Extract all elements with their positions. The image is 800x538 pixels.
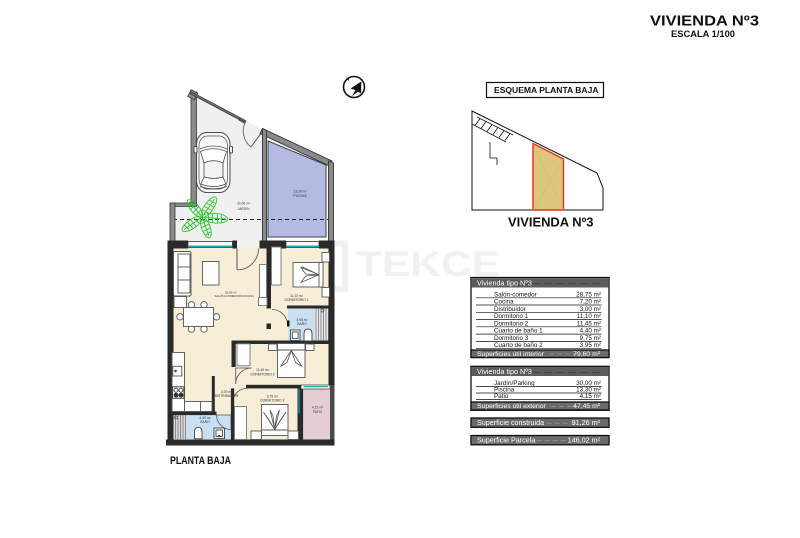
- svg-text:4,15 m²: 4,15 m²: [580, 393, 601, 400]
- svg-text:13,30 m²: 13,30 m²: [293, 190, 307, 194]
- svg-text:Dormitorio 3: Dormitorio 3: [494, 335, 529, 342]
- svg-text:Salón-comedor: Salón-comedor: [494, 291, 537, 298]
- svg-text:3,95 m²: 3,95 m²: [296, 318, 308, 322]
- svg-text:3,00 m²: 3,00 m²: [580, 306, 601, 313]
- svg-text:4,40 m²: 4,40 m²: [580, 328, 601, 335]
- svg-text:BAÑO: BAÑO: [200, 419, 210, 424]
- svg-text:Superficie Parcela: Superficie Parcela: [477, 436, 535, 445]
- svg-text:91,26 m²: 91,26 m²: [572, 418, 601, 427]
- svg-text:11,10 m²: 11,10 m²: [577, 313, 601, 320]
- svg-text:79,60 m²: 79,60 m²: [573, 351, 601, 358]
- svg-text:Vivienda tipo Nº3: Vivienda tipo Nº3: [477, 279, 532, 288]
- svg-text:Dormitorio 2: Dormitorio 2: [494, 320, 529, 327]
- svg-text:DORMITORIO 2: DORMITORIO 2: [250, 372, 274, 376]
- svg-text:9,75 m²: 9,75 m²: [580, 335, 601, 342]
- svg-text:47,45 m²: 47,45 m²: [573, 403, 601, 410]
- svg-text:ESQUEMA PLANTA BAJA: ESQUEMA PLANTA BAJA: [494, 85, 599, 95]
- svg-text:JARDIN: JARDIN: [238, 207, 251, 211]
- svg-text:Cuarto de baño 2: Cuarto de baño 2: [494, 342, 543, 349]
- svg-text:Cuarto de baño 1: Cuarto de baño 1: [494, 328, 543, 335]
- svg-text:11,45 m²: 11,45 m²: [577, 320, 601, 327]
- svg-text:146,02 m²: 146,02 m²: [568, 436, 601, 445]
- svg-text:PATIO: PATIO: [313, 410, 323, 414]
- svg-text:3,95 m²: 3,95 m²: [580, 342, 601, 349]
- svg-text:Distribuidor: Distribuidor: [494, 306, 526, 313]
- svg-text:VIVIENDA Nº3: VIVIENDA Nº3: [650, 13, 759, 29]
- svg-text:28,75 m²: 28,75 m²: [576, 291, 601, 298]
- svg-text:Superficie construida: Superficie construida: [477, 418, 544, 427]
- svg-text:Vivienda tipo Nº3: Vivienda tipo Nº3: [477, 367, 532, 376]
- svg-text:Superficies útil interior: Superficies útil interior: [477, 351, 545, 358]
- svg-text:SALÓN-COMEDOR/COCINA: SALÓN-COMEDOR/COCINA: [214, 293, 253, 298]
- svg-text:DORMITORIO 1: DORMITORIO 1: [284, 298, 308, 302]
- svg-text:ESCALA 1/100: ESCALA 1/100: [671, 29, 735, 40]
- svg-text:Cocina: Cocina: [494, 299, 514, 306]
- svg-text:VIVIENDA Nº3: VIVIENDA Nº3: [508, 216, 594, 230]
- svg-text:PLANTA BAJA: PLANTA BAJA: [170, 455, 231, 467]
- svg-text:Superficies útil exterior: Superficies útil exterior: [477, 403, 546, 410]
- svg-text:Patio: Patio: [494, 393, 509, 400]
- svg-text:BAÑO: BAÑO: [297, 321, 307, 326]
- svg-text:Dormitorio 1: Dormitorio 1: [494, 313, 529, 320]
- svg-text:N: N: [346, 76, 349, 81]
- svg-text:DORMITORIO 3: DORMITORIO 3: [260, 399, 284, 403]
- svg-text:DISTRIBUIDOR: DISTRIBUIDOR: [215, 394, 239, 398]
- svg-text:30,00 m²: 30,00 m²: [237, 202, 251, 206]
- svg-text:7,20 m²: 7,20 m²: [580, 299, 601, 306]
- svg-text:PISCINA: PISCINA: [293, 194, 307, 198]
